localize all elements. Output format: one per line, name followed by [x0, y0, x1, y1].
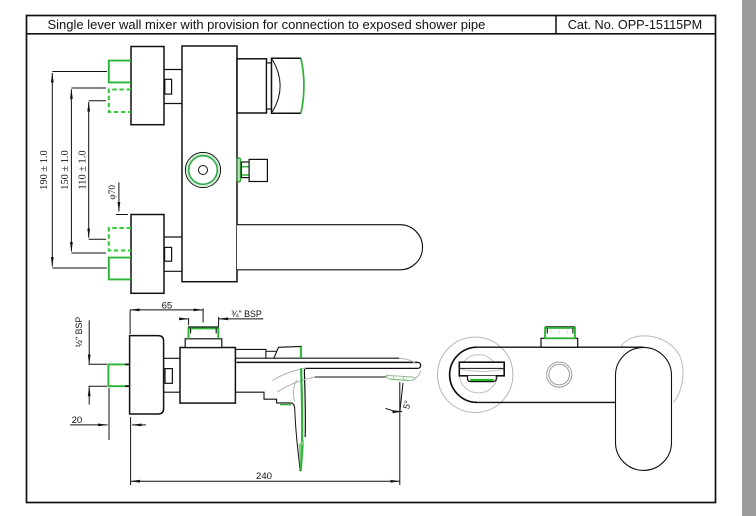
svg-text:240: 240	[256, 471, 272, 482]
svg-text:20: 20	[72, 415, 83, 426]
svg-text:110 ± 1.0: 110 ± 1.0	[78, 150, 89, 189]
svg-text:190 ± 1.0: 190 ± 1.0	[39, 150, 50, 189]
svg-text:¾" BSP: ¾" BSP	[231, 309, 262, 319]
svg-text:Single lever wall mixer with p: Single lever wall mixer with provision f…	[48, 17, 486, 32]
svg-text:½" BSP: ½" BSP	[74, 317, 84, 348]
svg-text:65: 65	[162, 301, 173, 312]
svg-text:φ70: φ70	[108, 185, 118, 200]
svg-text:Cat. No. OPP-15115PM: Cat. No. OPP-15115PM	[568, 18, 702, 32]
svg-text:150 ± 1.0: 150 ± 1.0	[60, 150, 71, 189]
